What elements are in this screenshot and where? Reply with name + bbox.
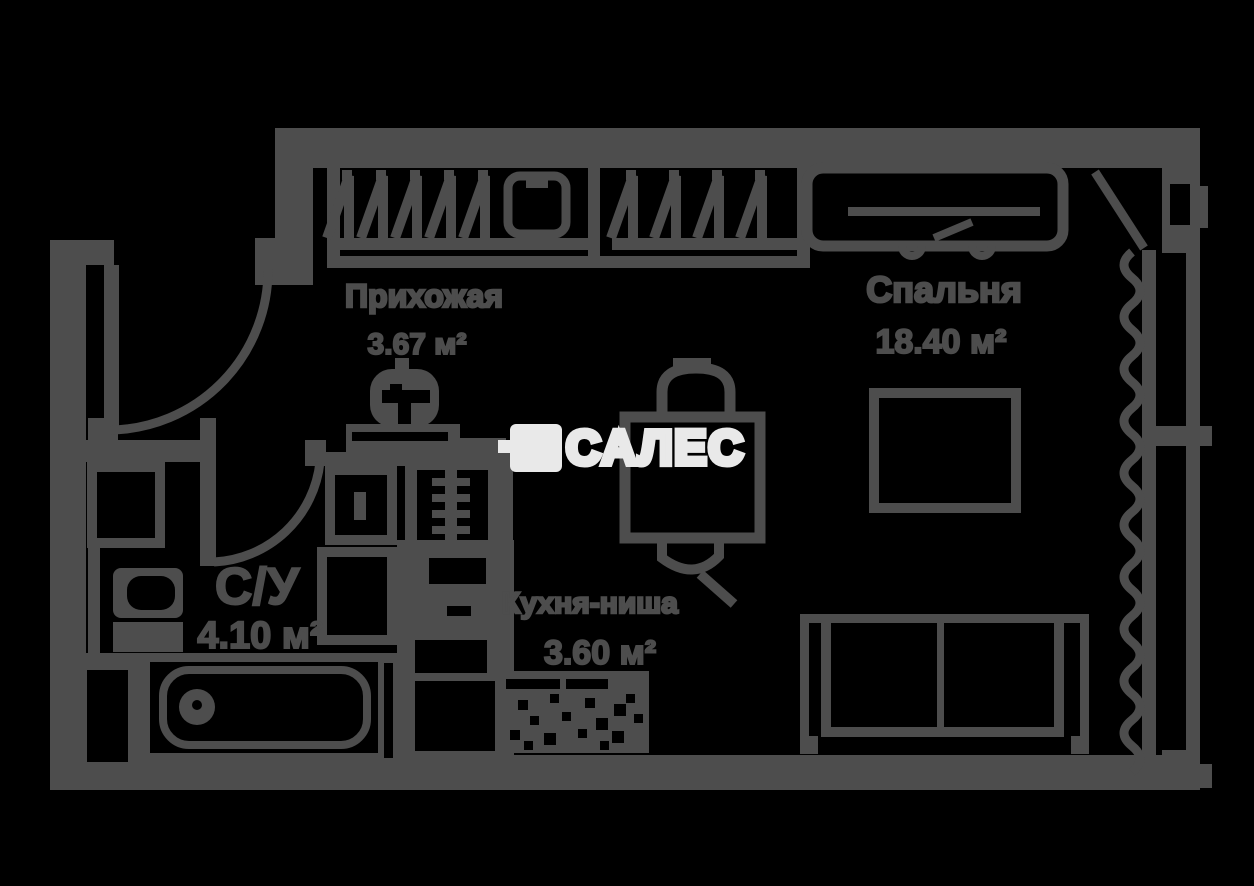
svg-text:3.60 м²: 3.60 м² (544, 634, 656, 672)
svg-text:Кухня-ниша: Кухня-ниша (502, 587, 678, 620)
svg-text:3.67 м²: 3.67 м² (368, 328, 467, 361)
svg-text:Спальня: Спальня (866, 269, 1022, 310)
svg-text:18.40 м²: 18.40 м² (875, 323, 1006, 361)
svg-text:Прихожая: Прихожая (345, 278, 503, 314)
svg-text:С/У: С/У (215, 558, 300, 616)
svg-text:САЛЕС: САЛЕС (566, 422, 745, 475)
svg-text:4.10 м²: 4.10 м² (197, 615, 322, 657)
